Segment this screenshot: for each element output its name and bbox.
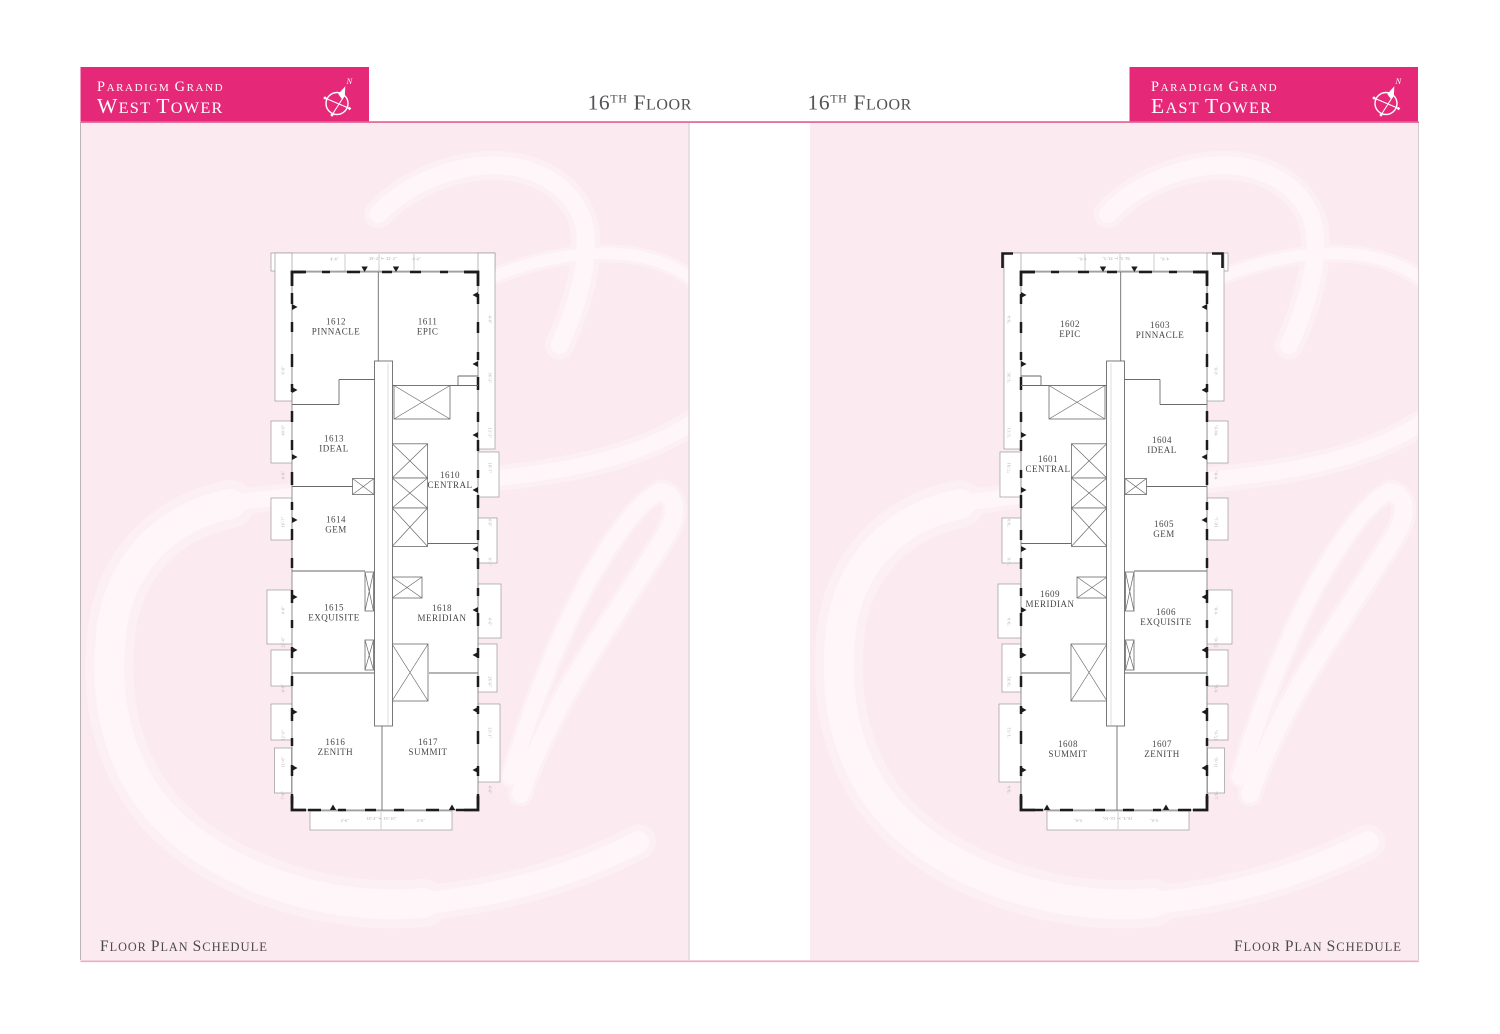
svg-text:1610: 1610 xyxy=(440,470,460,480)
svg-text:1602: 1602 xyxy=(1060,319,1080,329)
svg-text:1612: 1612 xyxy=(326,317,346,327)
svg-text:IDEAL: IDEAL xyxy=(319,444,349,454)
svg-text:1616: 1616 xyxy=(325,737,345,747)
svg-text:18'-7": 18'-7" xyxy=(488,463,493,474)
svg-text:EPIC: EPIC xyxy=(417,327,439,337)
svg-text:18'-4" ⊢ 19'-10": 18'-4" ⊢ 19'-10" xyxy=(1102,816,1132,821)
svg-text:1607: 1607 xyxy=(1152,739,1172,749)
svg-text:9'-1": 9'-1" xyxy=(1007,558,1012,567)
svg-text:EXQUISITE: EXQUISITE xyxy=(308,613,360,623)
svg-text:4'-6": 4'-6" xyxy=(281,470,286,479)
svg-text:4'-6": 4'-6" xyxy=(1007,618,1012,627)
svg-text:1606: 1606 xyxy=(1156,607,1176,617)
svg-text:GEM: GEM xyxy=(325,525,347,535)
svg-text:29'-2" ⊢ 32'-2": 29'-2" ⊢ 32'-2" xyxy=(369,256,397,261)
svg-text:1613: 1613 xyxy=(324,434,344,444)
svg-text:13'-3": 13'-3" xyxy=(1007,428,1012,439)
svg-text:FLOOR PLAN SCHEDULE: FLOOR PLAN SCHEDULE xyxy=(100,938,268,955)
svg-text:1601: 1601 xyxy=(1038,454,1058,464)
svg-text:4'-6": 4'-6" xyxy=(488,519,493,528)
svg-text:36'-3": 36'-3" xyxy=(1007,373,1012,384)
svg-text:4'-6": 4'-6" xyxy=(281,605,286,614)
svg-text:22'-6": 22'-6" xyxy=(281,636,286,647)
svg-text:9'-1": 9'-1" xyxy=(488,558,493,567)
svg-text:SUMMIT: SUMMIT xyxy=(1048,749,1087,759)
svg-text:1608: 1608 xyxy=(1058,739,1078,749)
svg-text:4'-6": 4'-6" xyxy=(1007,519,1012,528)
svg-text:4'-6": 4'-6" xyxy=(1214,470,1219,479)
svg-text:18'-7": 18'-7" xyxy=(1007,463,1012,474)
svg-text:1617: 1617 xyxy=(418,737,438,747)
svg-text:26'-6": 26'-6" xyxy=(488,677,493,688)
svg-text:EXQUISITE: EXQUISITE xyxy=(1140,617,1192,627)
svg-text:MERIDIAN: MERIDIAN xyxy=(418,613,467,623)
svg-text:36'-3": 36'-3" xyxy=(488,373,493,384)
svg-text:26'-6": 26'-6" xyxy=(1007,677,1012,688)
svg-text:1605: 1605 xyxy=(1154,519,1174,529)
svg-text:29'-2" ⊢ 32'-2": 29'-2" ⊢ 32'-2" xyxy=(1102,256,1130,261)
svg-text:4'-6": 4'-6" xyxy=(1160,257,1169,262)
svg-text:4'-6": 4'-6" xyxy=(1214,605,1219,614)
svg-text:1615: 1615 xyxy=(324,603,344,613)
svg-text:7'-6": 7'-6" xyxy=(1214,790,1219,799)
svg-text:6'-6": 6'-6" xyxy=(281,365,286,374)
svg-text:4'-6": 4'-6" xyxy=(1078,257,1087,262)
svg-text:22'-6": 22'-6" xyxy=(1214,636,1219,647)
svg-text:EPIC: EPIC xyxy=(1059,329,1081,339)
svg-text:11'-6": 11'-6" xyxy=(1214,756,1219,767)
svg-text:4'-6": 4'-6" xyxy=(1073,818,1082,823)
svg-text:1604: 1604 xyxy=(1152,435,1172,445)
svg-text:1603: 1603 xyxy=(1150,320,1170,330)
svg-text:MERIDIAN: MERIDIAN xyxy=(1026,599,1075,609)
svg-text:4'-6": 4'-6" xyxy=(281,683,286,692)
svg-text:4'-6": 4'-6" xyxy=(330,257,339,262)
svg-text:1611: 1611 xyxy=(418,317,438,327)
svg-text:FLOOR PLAN SCHEDULE: FLOOR PLAN SCHEDULE xyxy=(1234,938,1402,955)
svg-text:IDEAL: IDEAL xyxy=(1147,445,1177,455)
svg-text:12'-0": 12'-0" xyxy=(281,729,286,740)
svg-text:CENTRAL: CENTRAL xyxy=(428,480,473,490)
svg-text:PINNACLE: PINNACLE xyxy=(1136,330,1185,340)
svg-text:1609: 1609 xyxy=(1040,589,1060,599)
svg-text:7'-6": 7'-6" xyxy=(281,790,286,799)
svg-text:1614: 1614 xyxy=(326,515,346,525)
svg-text:4'-6": 4'-6" xyxy=(417,818,426,823)
svg-text:16'-7": 16'-7" xyxy=(281,516,286,527)
svg-text:PARADIGM GRAND: PARADIGM GRAND xyxy=(97,79,224,95)
svg-text:4'-6": 4'-6" xyxy=(1214,683,1219,692)
svg-text:CENTRAL: CENTRAL xyxy=(1026,464,1071,474)
svg-text:16'-7": 16'-7" xyxy=(1214,516,1219,527)
svg-text:ZENITH: ZENITH xyxy=(1144,749,1180,759)
svg-text:12'-0": 12'-0" xyxy=(1214,729,1219,740)
svg-text:4'-6": 4'-6" xyxy=(412,257,421,262)
svg-text:PARADIGM GRAND: PARADIGM GRAND xyxy=(1151,79,1278,95)
svg-text:13'-3": 13'-3" xyxy=(488,428,493,439)
svg-text:GEM: GEM xyxy=(1153,529,1175,539)
svg-text:23'-1": 23'-1" xyxy=(1007,728,1012,739)
svg-text:4'-6": 4'-6" xyxy=(488,786,493,795)
svg-text:40'-0": 40'-0" xyxy=(1214,424,1219,435)
svg-text:23'-1": 23'-1" xyxy=(488,728,493,739)
svg-text:4'-6": 4'-6" xyxy=(1007,316,1012,325)
svg-text:40'-0": 40'-0" xyxy=(281,424,286,435)
svg-text:4'-6": 4'-6" xyxy=(341,818,350,823)
svg-text:1618: 1618 xyxy=(432,603,452,613)
svg-text:PINNACLE: PINNACLE xyxy=(312,327,361,337)
svg-text:SUMMIT: SUMMIT xyxy=(408,747,447,757)
svg-text:4'-6": 4'-6" xyxy=(1007,786,1012,795)
svg-text:11'-6": 11'-6" xyxy=(281,756,286,767)
svg-text:4'-6": 4'-6" xyxy=(488,316,493,325)
svg-text:6'-6": 6'-6" xyxy=(1214,365,1219,374)
svg-text:4'-6": 4'-6" xyxy=(488,618,493,627)
svg-text:18'-4" ⊢ 19'-10": 18'-4" ⊢ 19'-10" xyxy=(366,816,396,821)
svg-text:4'-6": 4'-6" xyxy=(1149,818,1158,823)
svg-text:ZENITH: ZENITH xyxy=(318,747,354,757)
